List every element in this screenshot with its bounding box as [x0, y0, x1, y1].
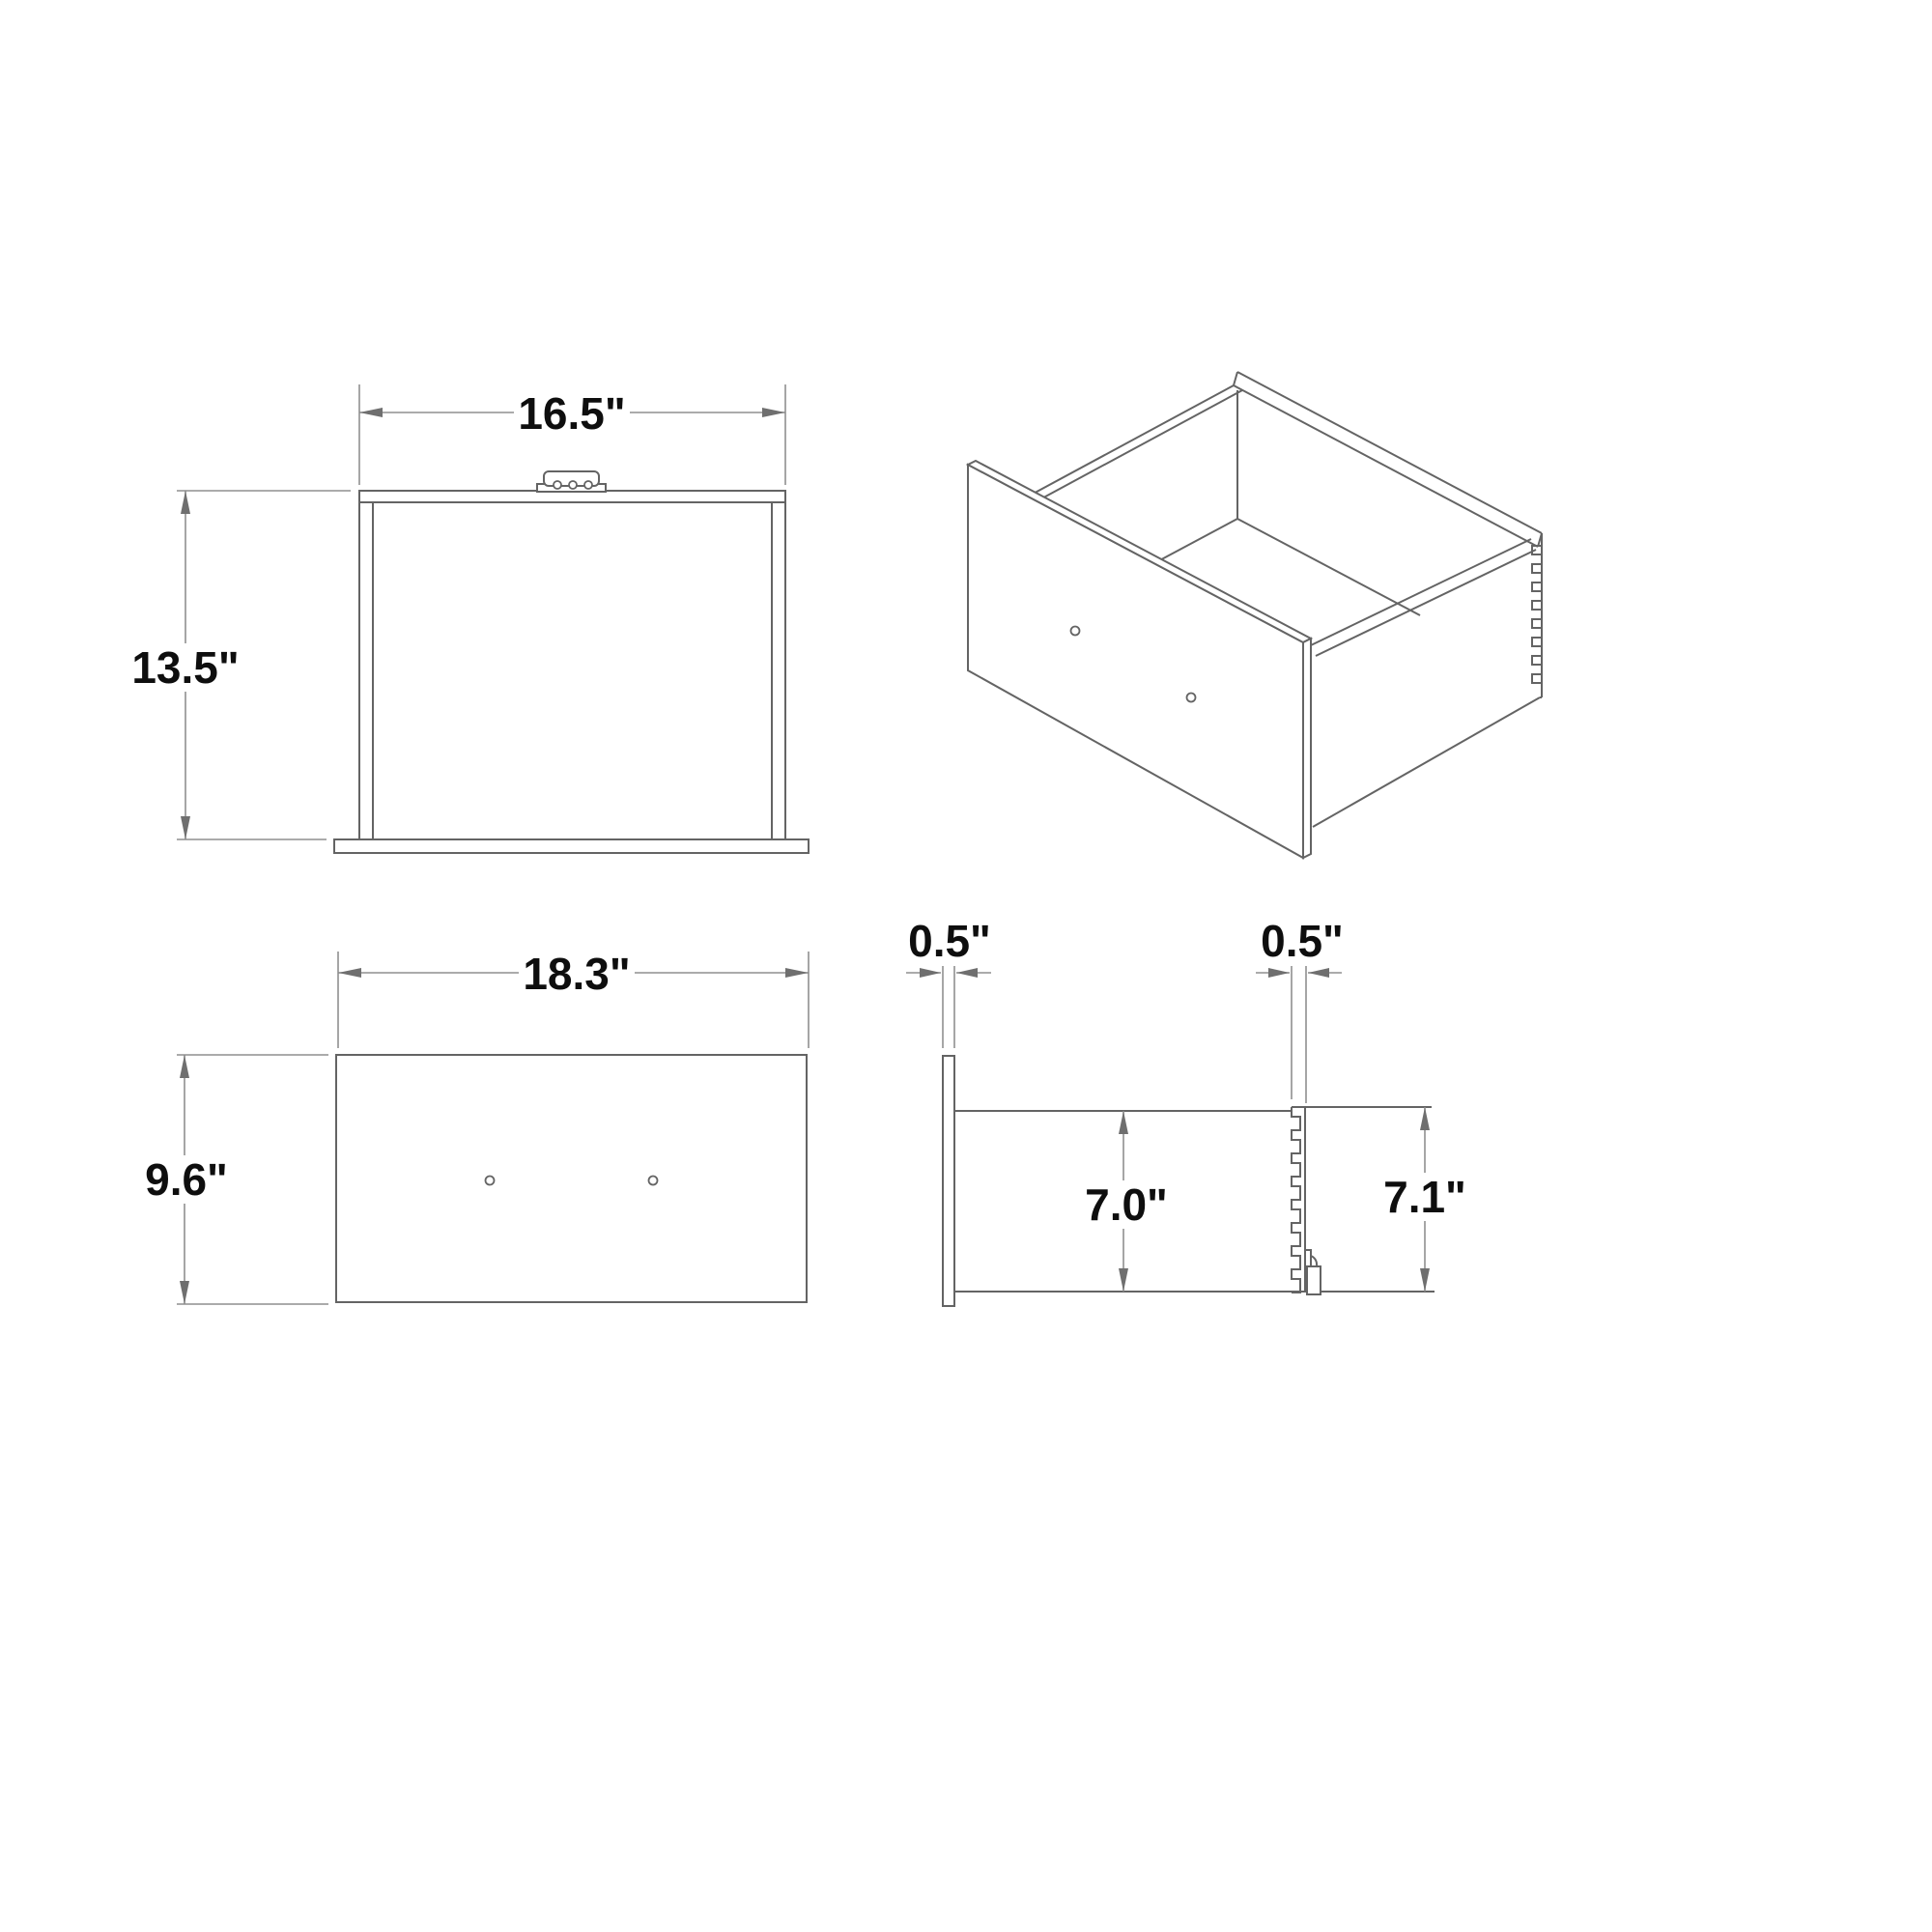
front-panel-view: 18.3" 9.6": [136, 949, 809, 1304]
top-view-left-side: [359, 502, 373, 839]
iso-right-side-wall: [1311, 539, 1542, 827]
front-panel-height-dim-label: 9.6": [145, 1154, 228, 1205]
side-view-dovetail-teeth: [1292, 1107, 1300, 1293]
side-view-front-panel: [943, 1056, 954, 1306]
front-panel-hole-right: [649, 1177, 658, 1185]
iso-left-side-wall: [1028, 385, 1242, 501]
top-view-width-dim-label: 16.5": [518, 388, 625, 439]
iso-front-panel: [968, 461, 1311, 858]
front-panel-face: [336, 1055, 807, 1302]
front-panel-width-dim-label: 18.3": [523, 949, 630, 999]
front-panel-hole-left: [486, 1177, 495, 1185]
top-view-depth-dimension: 13.5": [131, 491, 351, 839]
side-section-view: 0.5" 0.5" 7.0" 7.1": [906, 916, 1475, 1306]
top-view-clip: [537, 471, 606, 492]
drawer-drawing: 16.5" 13.5": [0, 0, 1932, 1932]
top-view-right-side: [772, 502, 785, 839]
side-view-side-height-label: 7.0": [1085, 1179, 1168, 1230]
side-view-front-thickness-label: 0.5": [908, 916, 991, 966]
side-view-back-height-label: 7.1": [1383, 1172, 1466, 1222]
side-view-latch: [1305, 1250, 1321, 1294]
front-panel-width-dimension: 18.3": [338, 949, 809, 1048]
isometric-view: [968, 372, 1542, 858]
iso-handle-hole-left: [1071, 627, 1080, 636]
top-view: 16.5" 13.5": [131, 384, 809, 853]
side-view-back-thickness-dimension: 0.5": [1256, 916, 1344, 1103]
side-view-back-height-dimension: 7.1": [1375, 1107, 1475, 1292]
side-view-front-thickness-dimension: 0.5": [906, 916, 991, 1048]
technical-drawing-page: 16.5" 13.5": [0, 0, 1932, 1932]
iso-dovetail-joint: [1532, 546, 1542, 688]
side-view-back-thickness-label: 0.5": [1261, 916, 1344, 966]
side-view-side-height-dimension: 7.0": [1074, 1111, 1175, 1292]
top-view-depth-dim-label: 13.5": [131, 642, 239, 693]
top-view-front-panel: [334, 839, 809, 853]
front-panel-height-dimension: 9.6": [136, 1055, 328, 1304]
top-view-width-dimension: 16.5": [359, 384, 785, 485]
iso-handle-hole-right: [1187, 694, 1196, 702]
